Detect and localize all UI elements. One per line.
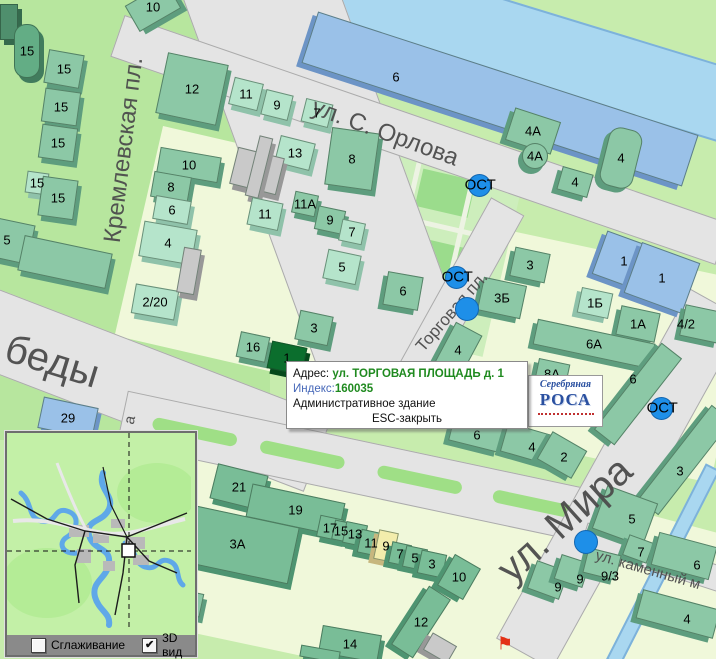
tooltip-esc-hint: ESC-закрыть bbox=[293, 412, 521, 427]
stop-label: ОСТ bbox=[647, 400, 678, 417]
building-number: 4 bbox=[528, 440, 535, 455]
building-number: 21 bbox=[232, 480, 246, 495]
building-number: 4 bbox=[571, 175, 578, 190]
building-number: 13 bbox=[288, 146, 302, 161]
building-number: 10 bbox=[182, 158, 196, 173]
building-number: 11 bbox=[364, 536, 378, 551]
minimap[interactable]: Сглаживание ✔ 3D вид bbox=[5, 431, 197, 657]
building-number: 4 bbox=[617, 151, 624, 166]
building-number: 2/20 bbox=[142, 295, 167, 310]
advert-logo-redline bbox=[538, 413, 594, 415]
building-number: 3 bbox=[428, 557, 435, 572]
building-number: 12 bbox=[414, 615, 428, 630]
stop-label: ОСТ bbox=[442, 269, 473, 286]
advert-logo-line2: РОСА bbox=[529, 390, 602, 410]
building-number: 15 bbox=[334, 524, 348, 539]
building-number: 16 bbox=[246, 340, 260, 355]
building-number: 29 bbox=[61, 411, 75, 426]
advert-logo-line1: Серебряная bbox=[529, 379, 602, 390]
building-number: 5 bbox=[338, 260, 345, 275]
building-number: 6 bbox=[392, 70, 399, 85]
building-number: 4 bbox=[164, 236, 171, 251]
building-number: 13 bbox=[348, 527, 362, 542]
building-number: 4А bbox=[525, 124, 541, 139]
tooltip-index-label: Индекс: bbox=[293, 383, 335, 395]
building-number: 19 bbox=[288, 503, 302, 518]
building-number: 14 bbox=[343, 637, 357, 652]
building-number: 11 bbox=[258, 207, 272, 222]
building-number: 15 bbox=[51, 136, 65, 151]
building-number: 7 bbox=[348, 225, 355, 240]
building-number: 7 bbox=[313, 106, 320, 121]
building-number: 9 bbox=[554, 580, 561, 595]
building-number: 4 bbox=[454, 343, 461, 358]
building-number: 10 bbox=[452, 570, 466, 585]
building-number: 8 bbox=[348, 152, 355, 167]
stop-label: ОСТ bbox=[465, 177, 496, 194]
flag-icon[interactable]: ⚑ bbox=[497, 634, 513, 655]
building-number: 15 bbox=[30, 176, 44, 191]
building-number: 3 bbox=[310, 321, 317, 336]
3d-view-label: 3D вид bbox=[162, 631, 195, 659]
minimap-toolbar: Сглаживание ✔ 3D вид bbox=[7, 635, 195, 655]
building-number: 5 bbox=[411, 551, 418, 566]
building-number: 9 bbox=[326, 213, 333, 228]
building-number: 6 bbox=[629, 372, 636, 387]
building-number: 15 bbox=[54, 100, 68, 115]
building-number: 1Б bbox=[587, 296, 603, 311]
tooltip-index-line: Индекс:160035 bbox=[293, 382, 521, 397]
3d-view-checkbox[interactable]: ✔ bbox=[142, 638, 157, 653]
building-number: 1А bbox=[630, 317, 646, 332]
tooltip-building-type: Административное здание bbox=[293, 397, 521, 412]
bus-stop-icon[interactable]: ОСТ bbox=[444, 265, 468, 289]
building-number: 4А bbox=[527, 149, 543, 164]
building-number: 1 bbox=[658, 271, 665, 286]
building-number: 9 bbox=[576, 572, 583, 587]
stop-dot-icon[interactable] bbox=[574, 530, 598, 554]
building-number: 6А bbox=[586, 337, 602, 352]
tooltip-address-label: Адрес: bbox=[293, 368, 329, 380]
address-tooltip: Адрес: ул. ТОРГОВАЯ ПЛОЩАДЬ д. 1 Индекс:… bbox=[286, 361, 528, 429]
building-number: 5 bbox=[3, 233, 10, 248]
building-number: 6 bbox=[473, 428, 480, 443]
building-number: 4 bbox=[683, 612, 690, 627]
minimap-viewport-marker bbox=[122, 544, 135, 557]
smoothing-checkbox[interactable] bbox=[31, 638, 46, 653]
building-number: 6 bbox=[693, 558, 700, 573]
minimap-map[interactable] bbox=[7, 433, 191, 631]
bus-stop-icon[interactable]: ОСТ bbox=[649, 396, 673, 420]
map-canvas[interactable]: 15151515151551012108642/2029119713811А11… bbox=[0, 0, 716, 659]
building-number: 2 bbox=[560, 450, 567, 465]
building-number: 3Б bbox=[494, 291, 510, 306]
bus-stop-icon[interactable]: ОСТ bbox=[467, 173, 491, 197]
building-number: 15 bbox=[51, 191, 65, 206]
building-number: 15 bbox=[20, 44, 34, 59]
building-number: 5 bbox=[628, 512, 635, 527]
building-number: 12 bbox=[185, 82, 199, 97]
building-number: 9/3 bbox=[601, 569, 619, 584]
building-number: 9 bbox=[382, 539, 389, 554]
building-number: 11 bbox=[239, 87, 253, 102]
stop-dot-icon[interactable] bbox=[455, 297, 479, 321]
building-number: 4/2 bbox=[677, 317, 695, 332]
tooltip-index-value: 160035 bbox=[335, 383, 373, 395]
building-number: 6 bbox=[399, 284, 406, 299]
advert-logo: Серебряная РОСА bbox=[528, 375, 603, 427]
building-number: 9 bbox=[273, 98, 280, 113]
building-number: 7 bbox=[396, 547, 403, 562]
building-number: 3 bbox=[526, 258, 533, 273]
building-number: 15 bbox=[57, 62, 71, 77]
building-number: 8 bbox=[167, 180, 174, 195]
building-number: 3А bbox=[230, 537, 246, 552]
building-number: 10 bbox=[146, 0, 160, 15]
building-number: 1 bbox=[620, 254, 627, 269]
smoothing-label: Сглаживание bbox=[51, 638, 125, 652]
building-number: 11А bbox=[294, 197, 316, 212]
building-number: 6 bbox=[168, 203, 175, 218]
building-number: 3 bbox=[676, 464, 683, 479]
tooltip-address-line: Адрес: ул. ТОРГОВАЯ ПЛОЩАДЬ д. 1 bbox=[293, 367, 521, 382]
tooltip-address-value: ул. ТОРГОВАЯ ПЛОЩАДЬ д. 1 bbox=[332, 368, 504, 380]
building-number: 7 bbox=[637, 545, 644, 560]
